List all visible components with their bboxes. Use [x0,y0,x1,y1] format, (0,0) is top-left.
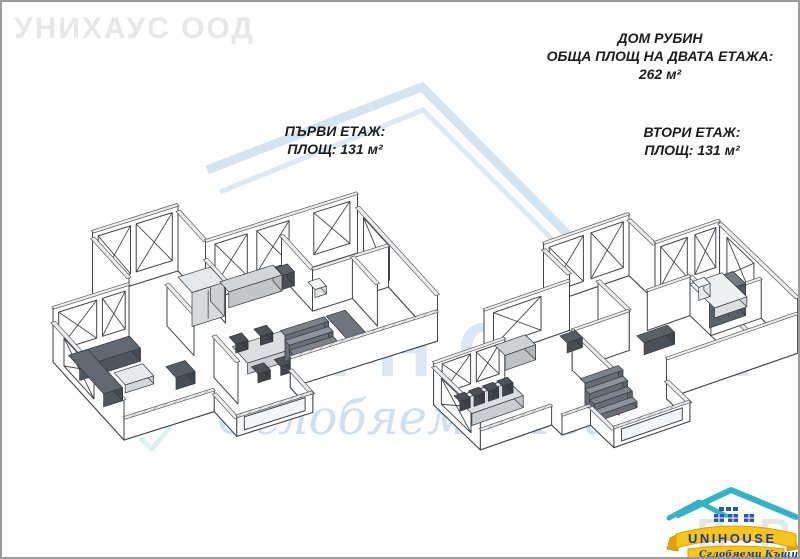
logo-brand-text: UNIHOUSE [688,531,777,546]
logo-tagline-text: Сглобяеми Къщи [699,549,798,559]
listing-sheet: UNIHOUSE Сглобяеми Къщи УНИХАУС ООД ДОМ … [0,0,800,559]
unihouse-logo: B R UNIHOUSE Сглобяеми [2,2,800,559]
logo-windows [714,507,754,522]
logo-banner: UNIHOUSE Сглобяеми Къщи [667,526,798,559]
